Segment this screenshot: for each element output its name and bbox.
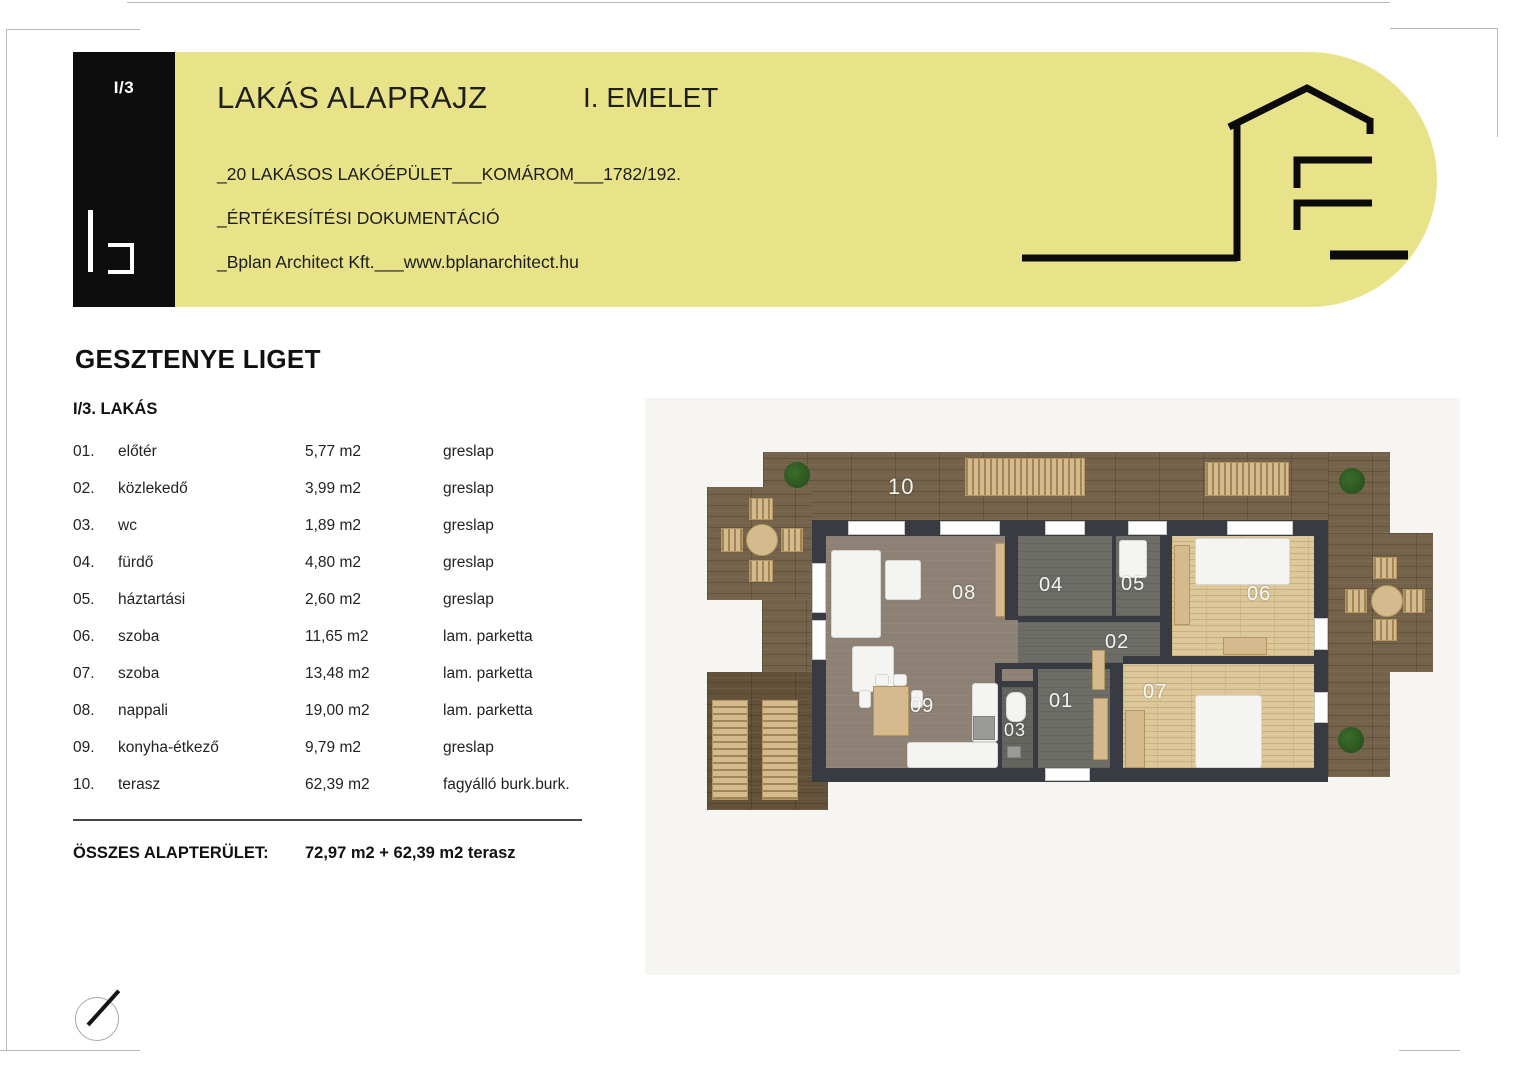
frame-line-bottom-left bbox=[0, 1050, 140, 1051]
sofa bbox=[831, 550, 881, 638]
room-name: szoba bbox=[118, 628, 305, 646]
kitchen-counter bbox=[907, 742, 998, 768]
room-name: közlekedő bbox=[118, 480, 305, 498]
patio-chair bbox=[721, 528, 743, 552]
bplan-logo-bracket-icon bbox=[108, 243, 134, 274]
room-no: 04. bbox=[73, 554, 118, 572]
total-value: 72,97 m2 + 62,39 m2 terasz bbox=[305, 844, 516, 863]
room-no: 05. bbox=[73, 591, 118, 609]
room-name: háztartási bbox=[118, 591, 305, 609]
interior-wall bbox=[1005, 536, 1018, 620]
bed bbox=[1195, 695, 1262, 768]
room-no: 09. bbox=[73, 739, 118, 757]
bplan-logo-icon bbox=[88, 210, 93, 272]
window-slot bbox=[812, 563, 826, 613]
room-no: 03. bbox=[73, 517, 118, 535]
page-title: LAKÁS ALAPRAJZ bbox=[217, 80, 488, 116]
patio-chair bbox=[781, 528, 803, 552]
room-area: 4,80 m2 bbox=[305, 554, 443, 572]
patio-chair bbox=[1403, 589, 1425, 613]
room-no: 06. bbox=[73, 628, 118, 646]
pouf bbox=[885, 560, 921, 600]
window-slot bbox=[1314, 618, 1328, 650]
house-logo-icon bbox=[1010, 78, 1410, 278]
room-area: 11,65 m2 bbox=[305, 628, 443, 646]
terrace-bench bbox=[965, 458, 1085, 496]
room-finish: fagyálló burk.burk. bbox=[443, 776, 585, 794]
patio-chair bbox=[1345, 589, 1367, 613]
window-slot bbox=[940, 521, 1000, 535]
room-no: 01. bbox=[73, 443, 118, 461]
room-04-floor bbox=[1018, 536, 1112, 616]
room-no: 10. bbox=[73, 776, 118, 794]
room-label-01: 01 bbox=[1049, 690, 1073, 713]
room-area: 9,79 m2 bbox=[305, 739, 443, 757]
door-slot bbox=[1045, 768, 1090, 781]
sink bbox=[1007, 746, 1021, 758]
room-label-09: 09 bbox=[910, 695, 934, 718]
room-area: 3,99 m2 bbox=[305, 480, 443, 498]
terrace-deck-right-upper bbox=[1328, 452, 1390, 533]
patio-chair bbox=[749, 498, 773, 520]
room-finish: greslap bbox=[443, 739, 585, 757]
floor-title: I. EMELET bbox=[583, 82, 718, 114]
stove bbox=[973, 716, 995, 740]
patio-chair bbox=[749, 560, 773, 582]
sun-lounger bbox=[712, 700, 748, 800]
company-line: _Bplan Architect Kft.___www.bplanarchite… bbox=[217, 252, 579, 273]
room-name: nappali bbox=[118, 702, 305, 720]
window-slot bbox=[1128, 521, 1167, 535]
room-finish: greslap bbox=[443, 480, 585, 498]
room-label-06: 06 bbox=[1247, 583, 1271, 606]
frame-line-right bbox=[1497, 28, 1498, 137]
frame-line-top-left bbox=[6, 29, 140, 30]
wardrobe bbox=[1174, 545, 1190, 625]
window-slot bbox=[1314, 692, 1328, 723]
table-row: 07. szoba 13,48 m2 lam. parketta bbox=[73, 655, 585, 692]
terrace-deck-right-lower bbox=[1328, 672, 1390, 777]
patio-table bbox=[746, 524, 778, 556]
table-row: 09. konyha-étkező 9,79 m2 greslap bbox=[73, 729, 585, 766]
room-name: előtér bbox=[118, 443, 305, 461]
room-area: 5,77 m2 bbox=[305, 443, 443, 461]
interior-wall bbox=[1160, 536, 1172, 664]
table-row: 03. wc 1,89 m2 greslap bbox=[73, 507, 585, 544]
total-divider bbox=[73, 819, 582, 821]
total-label: ÖSSZES ALAPTERÜLET: bbox=[73, 844, 269, 863]
table-row: 06. szoba 11,65 m2 lam. parketta bbox=[73, 618, 585, 655]
room-area: 13,48 m2 bbox=[305, 665, 443, 683]
room-label-05: 05 bbox=[1121, 573, 1145, 596]
toilet bbox=[1006, 692, 1026, 722]
table-row: 04. fürdő 4,80 m2 greslap bbox=[73, 544, 585, 581]
dining-chair bbox=[875, 674, 889, 686]
table-row: 01. előtér 5,77 m2 greslap bbox=[73, 433, 585, 470]
floor-plan: 10 08 04 05 06 02 09 01 03 07 bbox=[645, 398, 1460, 975]
cabinet bbox=[1092, 650, 1105, 690]
plant-icon bbox=[784, 462, 810, 488]
terrace-deck-left-strip bbox=[762, 600, 812, 672]
table-row: 02. közlekedő 3,99 m2 greslap bbox=[73, 470, 585, 507]
terrace-bench bbox=[1205, 462, 1289, 496]
interior-wall bbox=[1123, 656, 1314, 664]
room-label-08: 08 bbox=[952, 582, 976, 605]
room-name: fürdő bbox=[118, 554, 305, 572]
room-name: konyha-étkező bbox=[118, 739, 305, 757]
dining-chair bbox=[893, 674, 907, 686]
room-label-10: 10 bbox=[888, 474, 914, 500]
patio-table bbox=[1371, 585, 1403, 617]
header-sheet-tab: I/3 bbox=[73, 52, 175, 307]
frame-line-bottom-right bbox=[1399, 1050, 1460, 1051]
frame-line-left bbox=[6, 29, 7, 1050]
table-row: 05. háztartási 2,60 m2 greslap bbox=[73, 581, 585, 618]
room-finish: greslap bbox=[443, 591, 585, 609]
interior-wall bbox=[1110, 669, 1123, 768]
sheet-number: I/3 bbox=[73, 78, 175, 98]
room-area: 19,00 m2 bbox=[305, 702, 443, 720]
project-name: GESZTENYE LIGET bbox=[75, 344, 321, 375]
room-label-07: 07 bbox=[1143, 681, 1167, 704]
room-area: 2,60 m2 bbox=[305, 591, 443, 609]
patio-chair bbox=[1373, 557, 1397, 579]
north-compass-icon bbox=[75, 997, 119, 1041]
dining-table bbox=[873, 686, 909, 736]
sun-lounger bbox=[762, 700, 798, 800]
doc-line: _ÉRTÉKESÍTÉSI DOKUMENTÁCIÓ bbox=[217, 208, 500, 229]
room-name: szoba bbox=[118, 665, 305, 683]
frame-line-top bbox=[127, 2, 1390, 3]
room-finish: greslap bbox=[443, 554, 585, 572]
page: I/3 LAKÁS ALAPRAJZ I. EMELET _20 LAKÁSOS… bbox=[0, 0, 1528, 1080]
room-finish: greslap bbox=[443, 517, 585, 535]
window-slot bbox=[1045, 521, 1085, 535]
window-slot bbox=[812, 620, 826, 660]
dining-chair bbox=[859, 690, 871, 708]
frame-line-top-right bbox=[1390, 28, 1498, 29]
bed bbox=[1195, 538, 1290, 585]
room-finish: lam. parketta bbox=[443, 665, 585, 683]
room-area: 62,39 m2 bbox=[305, 776, 443, 794]
plant-icon bbox=[1339, 468, 1365, 494]
room-no: 02. bbox=[73, 480, 118, 498]
wardrobe bbox=[995, 543, 1005, 617]
room-no: 08. bbox=[73, 702, 118, 720]
room-label-03: 03 bbox=[1004, 720, 1026, 741]
table-row: 08. nappali 19,00 m2 lam. parketta bbox=[73, 692, 585, 729]
room-finish: lam. parketta bbox=[443, 628, 585, 646]
plant-icon bbox=[1338, 727, 1364, 753]
cabinet bbox=[1093, 698, 1108, 760]
wardrobe bbox=[1125, 710, 1145, 768]
window-slot bbox=[1227, 521, 1293, 535]
room-area: 1,89 m2 bbox=[305, 517, 443, 535]
room-finish: greslap bbox=[443, 443, 585, 461]
room-table: 01. előtér 5,77 m2 greslap 02. közlekedő… bbox=[73, 433, 585, 803]
room-label-02: 02 bbox=[1105, 631, 1129, 654]
room-finish: lam. parketta bbox=[443, 702, 585, 720]
patio-chair bbox=[1373, 619, 1397, 641]
window-slot bbox=[848, 521, 905, 535]
room-name: terasz bbox=[118, 776, 305, 794]
room-no: 07. bbox=[73, 665, 118, 683]
room-label-04: 04 bbox=[1039, 574, 1063, 597]
room-name: wc bbox=[118, 517, 305, 535]
table-row: 10. terasz 62,39 m2 fagyálló burk.burk. bbox=[73, 766, 585, 803]
desk bbox=[1223, 637, 1267, 655]
unit-title: I/3. LAKÁS bbox=[73, 400, 157, 419]
project-line: _20 LAKÁSOS LAKÓÉPÜLET___KOMÁROM___1782/… bbox=[217, 164, 681, 185]
